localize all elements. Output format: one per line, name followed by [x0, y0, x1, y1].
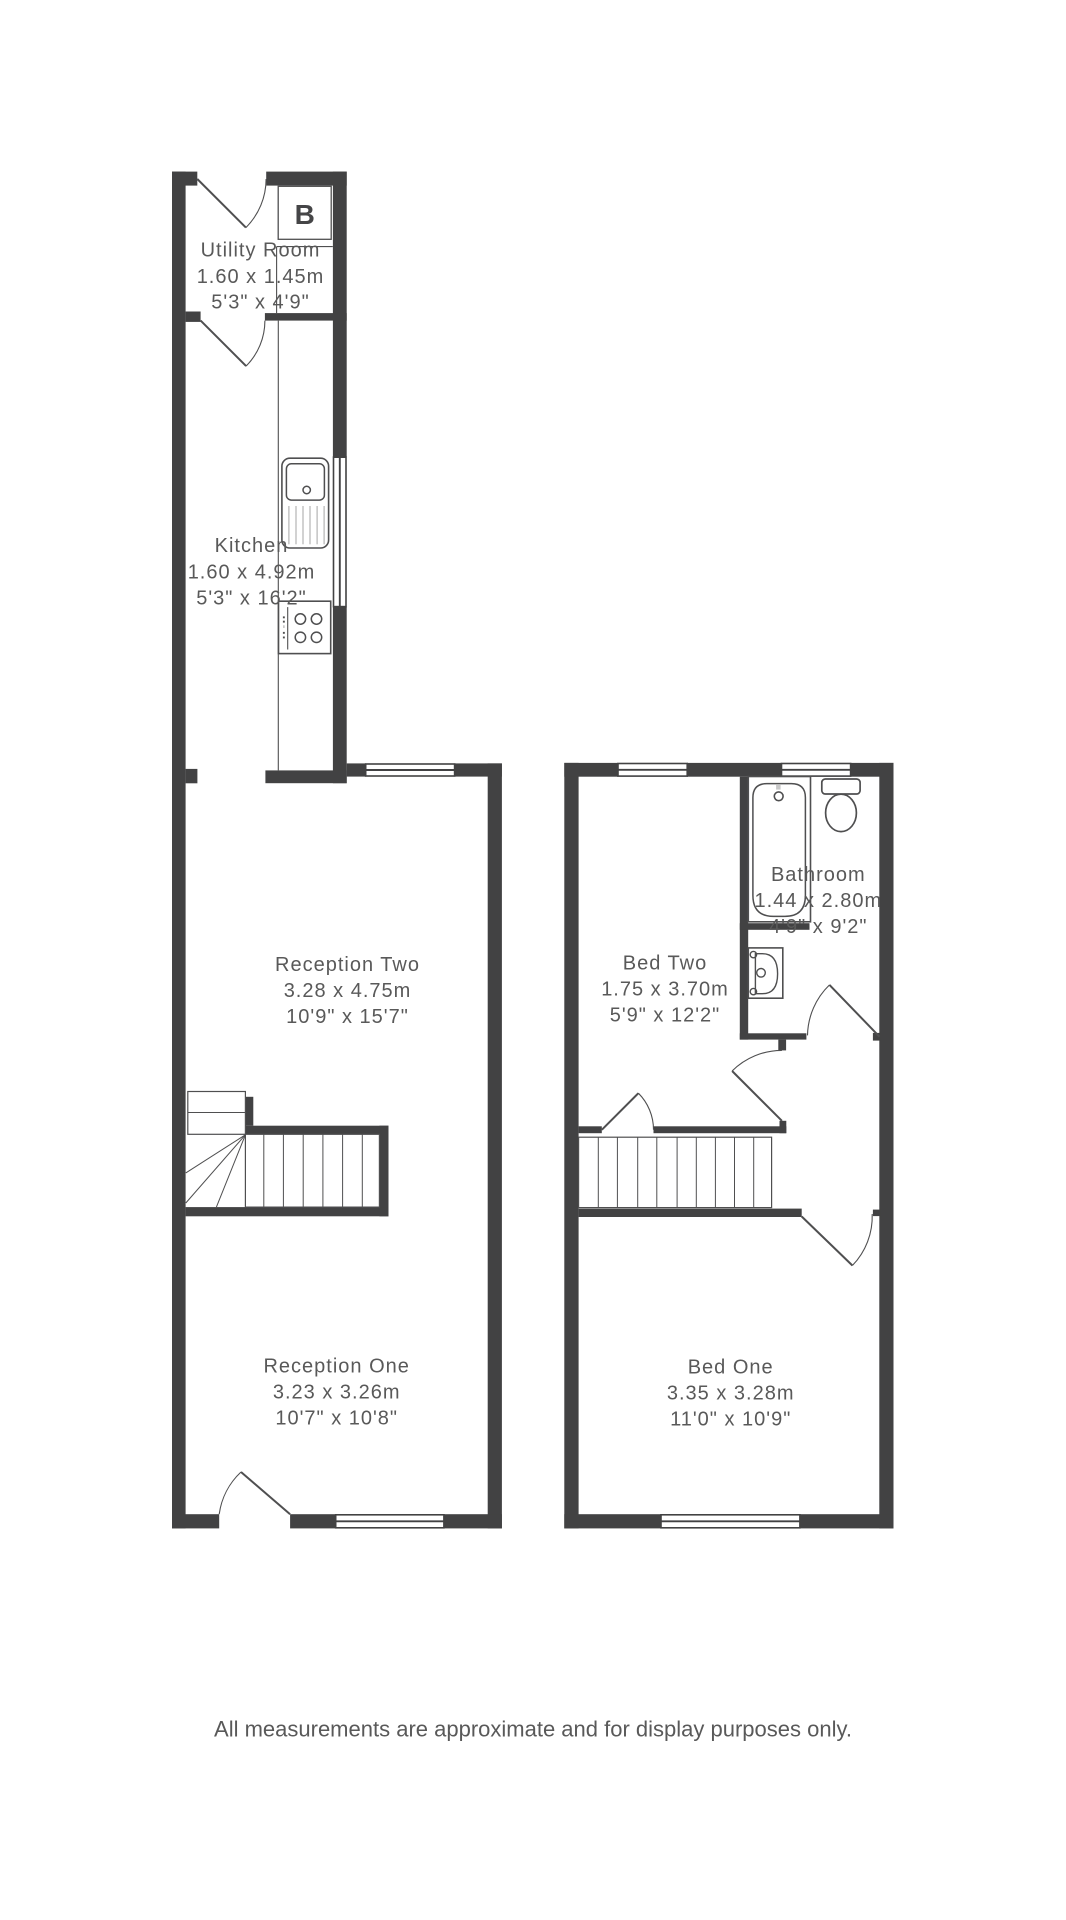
svg-text:Bed One: Bed One [688, 1356, 774, 1378]
svg-text:1.44 x 2.80m: 1.44 x 2.80m [754, 890, 882, 912]
svg-text:3.35 x 3.28m: 3.35 x 3.28m [667, 1382, 795, 1404]
svg-text:Utility Room: Utility Room [201, 240, 321, 262]
svg-text:5'3" x 16'2": 5'3" x 16'2" [196, 588, 307, 610]
svg-text:11'0" x 10'9": 11'0" x 10'9" [670, 1408, 791, 1430]
svg-text:All measurements are approxima: All measurements are approximate and for… [214, 1717, 852, 1742]
svg-text:10'9" x 15'7": 10'9" x 15'7" [286, 1006, 409, 1028]
svg-text:Kitchen: Kitchen [215, 535, 289, 557]
svg-text:Reception Two: Reception Two [275, 954, 420, 976]
svg-text:B: B [295, 199, 315, 230]
svg-text:3.28 x 4.75m: 3.28 x 4.75m [284, 980, 412, 1002]
svg-text:3.23 x 3.26m: 3.23 x 3.26m [273, 1382, 401, 1404]
svg-text:5'3" x 4'9": 5'3" x 4'9" [211, 292, 309, 314]
svg-text:1.60 x 4.92m: 1.60 x 4.92m [188, 561, 316, 583]
svg-text:10'7" x 10'8": 10'7" x 10'8" [275, 1408, 398, 1430]
svg-text:1.60 x 1.45m: 1.60 x 1.45m [197, 266, 325, 288]
svg-text:5'9" x 12'2": 5'9" x 12'2" [610, 1005, 721, 1027]
svg-text:Reception One: Reception One [263, 1356, 409, 1378]
svg-text:Bed Two: Bed Two [623, 953, 707, 975]
svg-text:4'9" x 9'2": 4'9" x 9'2" [769, 916, 867, 938]
svg-text:1.75 x 3.70m: 1.75 x 3.70m [601, 979, 729, 1001]
svg-text:Bathroom: Bathroom [771, 864, 866, 886]
